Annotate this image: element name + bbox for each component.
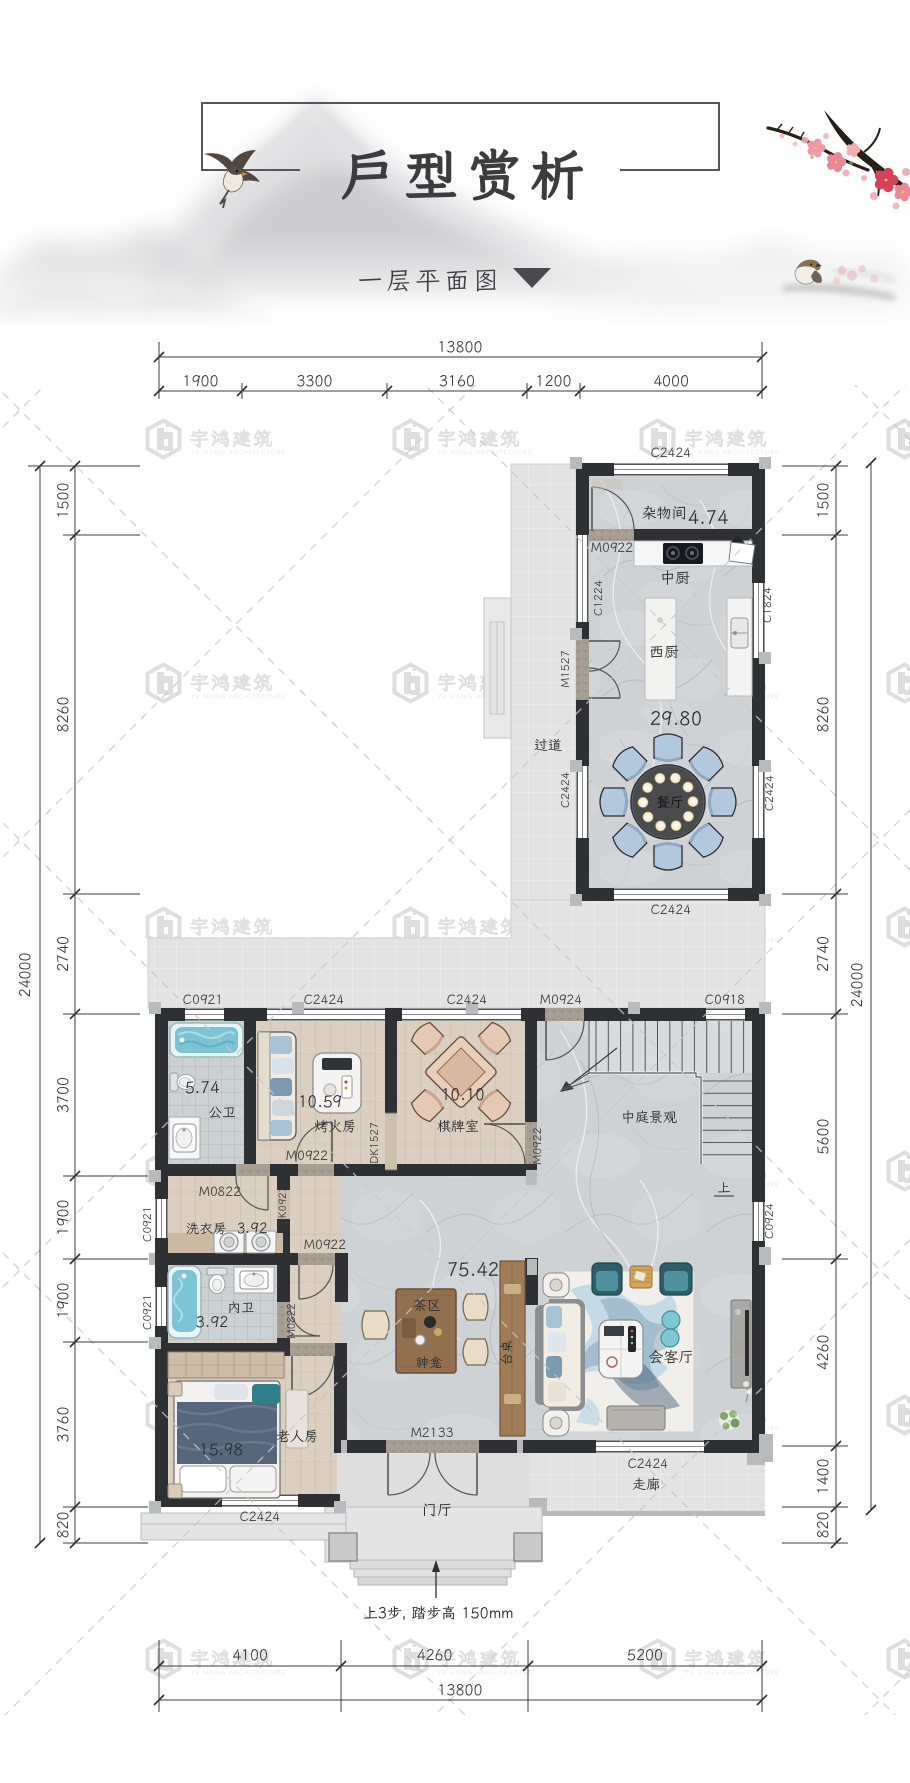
svg-text:4000: 4000: [653, 372, 689, 391]
svg-text:中厨: 中厨: [660, 569, 690, 588]
svg-text:3300: 3300: [296, 372, 332, 391]
svg-text:29.80: 29.80: [650, 706, 702, 731]
svg-text:M0922: M0922: [304, 1236, 347, 1253]
svg-text:会客厅: 会客厅: [648, 1348, 693, 1367]
svg-text:公卫: 公卫: [208, 1103, 236, 1121]
svg-text:上3步, 踏步高 150mm: 上3步, 踏步高 150mm: [363, 1604, 513, 1623]
svg-text:4260: 4260: [814, 1334, 833, 1370]
svg-text:M0822: M0822: [285, 1303, 299, 1339]
svg-text:一层平面图: 一层平面图: [357, 264, 502, 297]
svg-text:15.98: 15.98: [199, 1438, 243, 1460]
svg-text:M0922: M0922: [286, 1147, 329, 1164]
svg-text:C0921: C0921: [140, 1206, 155, 1242]
svg-text:4100: 4100: [232, 1646, 268, 1665]
svg-text:10.59: 10.59: [298, 1090, 342, 1112]
svg-text:13800: 13800: [437, 338, 482, 357]
svg-text:1500: 1500: [814, 482, 833, 518]
svg-text:神龛: 神龛: [416, 1354, 442, 1371]
svg-text:C0921: C0921: [183, 991, 223, 1008]
svg-text:C2424: C2424: [240, 1508, 281, 1525]
svg-text:13800: 13800: [437, 1681, 482, 1700]
svg-text:1200: 1200: [535, 372, 571, 391]
svg-text:24000: 24000: [16, 952, 35, 997]
svg-text:台桌: 台桌: [498, 1340, 515, 1366]
svg-text:3160: 3160: [439, 372, 475, 391]
svg-text:4.74: 4.74: [688, 505, 729, 530]
svg-text:1500: 1500: [54, 482, 73, 518]
svg-text:75.42: 75.42: [447, 1257, 499, 1282]
svg-text:C2424: C2424: [447, 991, 488, 1008]
svg-text:内卫: 内卫: [228, 1298, 255, 1316]
svg-text:门厅: 门厅: [422, 1501, 452, 1520]
svg-text:DK1527: DK1527: [368, 1122, 382, 1163]
svg-text:1400: 1400: [814, 1458, 833, 1494]
svg-text:茶区: 茶区: [413, 1296, 441, 1314]
svg-text:DK0927: DK0927: [275, 1186, 289, 1225]
svg-text:中庭景观: 中庭景观: [621, 1108, 677, 1126]
svg-text:5.74: 5.74: [185, 1076, 219, 1098]
svg-text:3700: 3700: [54, 1077, 73, 1113]
svg-text:烤火房: 烤火房: [314, 1117, 356, 1135]
svg-text:2740: 2740: [54, 936, 73, 972]
svg-text:C0921: C0921: [140, 1294, 155, 1330]
svg-text:C2424: C2424: [651, 444, 692, 461]
svg-text:M0822: M0822: [199, 1183, 242, 1200]
svg-text:1900: 1900: [54, 1199, 73, 1235]
svg-text:3.92: 3.92: [196, 1313, 228, 1332]
svg-text:C2424: C2424: [651, 901, 692, 918]
svg-text:820: 820: [54, 1511, 73, 1538]
svg-text:杂物间: 杂物间: [641, 504, 686, 523]
svg-text:餐厅: 餐厅: [656, 793, 684, 811]
svg-text:8260: 8260: [54, 696, 73, 732]
svg-text:C0924: C0924: [762, 1203, 777, 1239]
svg-text:820: 820: [814, 1511, 833, 1538]
svg-text:5600: 5600: [814, 1118, 833, 1154]
svg-text:C2424: C2424: [628, 1455, 669, 1472]
svg-text:C1224: C1224: [591, 580, 606, 616]
svg-text:M0922: M0922: [591, 539, 634, 556]
svg-text:8260: 8260: [814, 696, 833, 732]
svg-text:洗衣房: 洗衣房: [186, 1219, 227, 1237]
svg-text:棋牌室: 棋牌室: [437, 1117, 479, 1135]
svg-text:3.92: 3.92: [237, 1219, 267, 1237]
svg-text:上: 上: [717, 1179, 730, 1196]
svg-text:C0918: C0918: [705, 991, 746, 1008]
svg-text:M0922: M0922: [530, 1127, 545, 1165]
svg-text:M1527: M1527: [558, 650, 573, 688]
svg-text:M0924: M0924: [540, 991, 583, 1008]
svg-text:C2424: C2424: [762, 775, 777, 811]
svg-text:1900: 1900: [182, 372, 218, 391]
svg-text:1900: 1900: [54, 1282, 73, 1318]
svg-text:西厨: 西厨: [649, 643, 679, 662]
svg-text:24000: 24000: [848, 962, 867, 1007]
svg-text:4260: 4260: [416, 1646, 452, 1665]
svg-text:走廊: 走廊: [632, 1475, 660, 1493]
svg-text:10.10: 10.10: [441, 1083, 485, 1105]
svg-text:老人房: 老人房: [276, 1427, 318, 1445]
svg-text:户型赏析: 户型赏析: [341, 139, 593, 210]
svg-text:3760: 3760: [54, 1406, 73, 1442]
svg-text:C1824: C1824: [760, 587, 775, 623]
svg-text:2740: 2740: [814, 936, 833, 972]
svg-text:C2424: C2424: [304, 991, 345, 1008]
svg-text:C2424: C2424: [558, 772, 573, 808]
svg-text:5200: 5200: [627, 1646, 663, 1665]
svg-text:M2133: M2133: [411, 1424, 453, 1441]
svg-text:过道: 过道: [534, 736, 562, 754]
